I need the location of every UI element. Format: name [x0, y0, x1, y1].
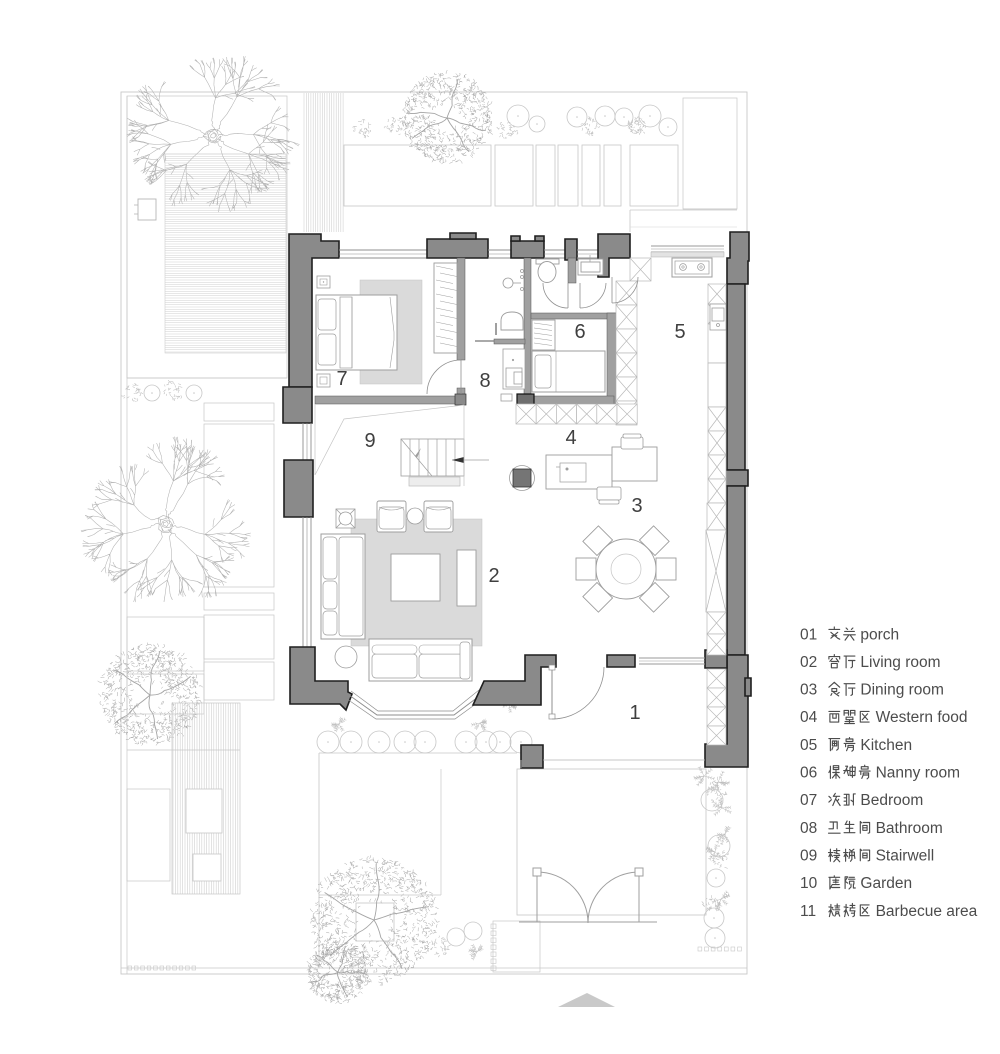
- svg-text:10: 10: [800, 875, 818, 892]
- svg-text:Garden: Garden: [860, 875, 912, 892]
- svg-text:Barbecue area: Barbecue area: [876, 903, 978, 920]
- svg-text:Bedroom: Bedroom: [860, 792, 923, 809]
- svg-text:05: 05: [800, 737, 817, 754]
- svg-text:5: 5: [674, 321, 685, 343]
- svg-text:02: 02: [800, 654, 817, 671]
- svg-text:11: 11: [800, 903, 816, 920]
- svg-text:9: 9: [364, 430, 375, 452]
- svg-text:4: 4: [565, 427, 576, 449]
- svg-text:1: 1: [629, 702, 640, 724]
- svg-text:04: 04: [800, 709, 818, 726]
- svg-text:Kitchen: Kitchen: [860, 737, 912, 754]
- svg-text:3: 3: [631, 495, 642, 517]
- svg-text:6: 6: [574, 321, 585, 343]
- svg-text:7: 7: [336, 368, 347, 390]
- svg-text:Nanny room: Nanny room: [876, 765, 960, 782]
- svg-text:Bathroom: Bathroom: [876, 820, 943, 837]
- svg-text:porch: porch: [860, 626, 899, 643]
- svg-text:Living room: Living room: [860, 654, 940, 671]
- svg-text:07: 07: [800, 792, 817, 809]
- svg-text:2: 2: [488, 565, 499, 587]
- svg-text:03: 03: [800, 682, 817, 699]
- svg-text:8: 8: [479, 370, 490, 392]
- svg-text:Western food: Western food: [876, 709, 968, 726]
- svg-text:Stairwell: Stairwell: [876, 848, 935, 865]
- svg-text:08: 08: [800, 820, 817, 837]
- svg-text:01: 01: [800, 626, 817, 643]
- svg-text:09: 09: [800, 848, 817, 865]
- svg-text:06: 06: [800, 765, 817, 782]
- svg-text:Dining room: Dining room: [860, 682, 944, 699]
